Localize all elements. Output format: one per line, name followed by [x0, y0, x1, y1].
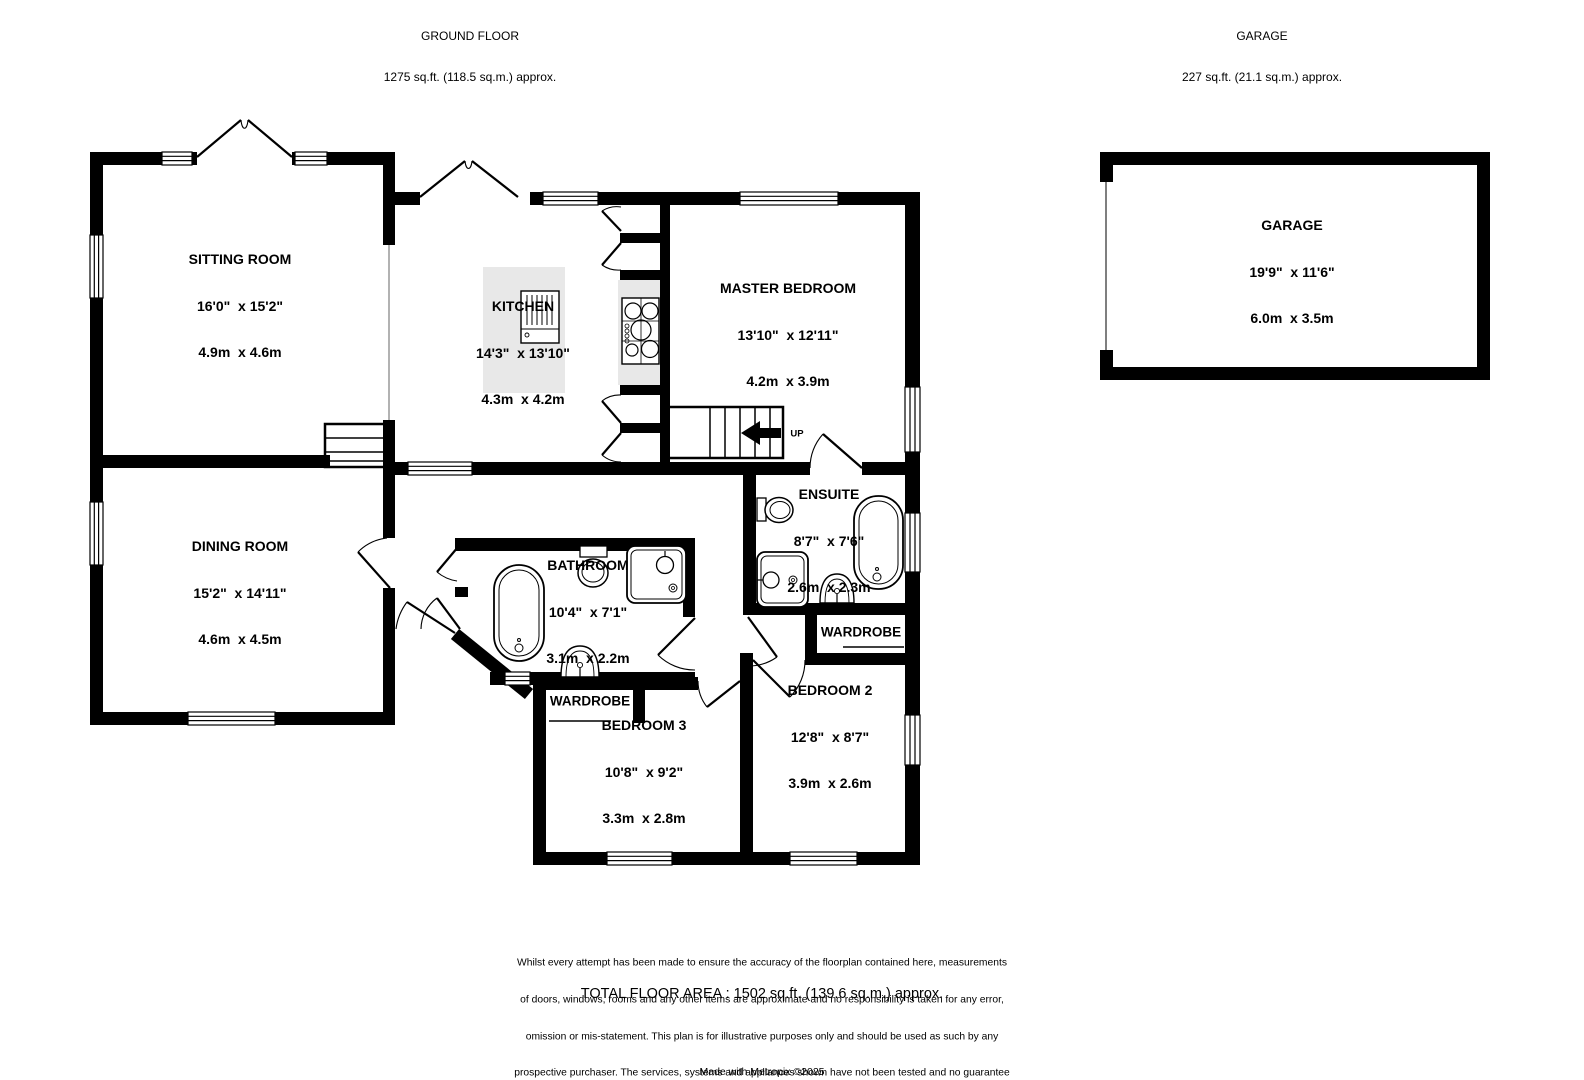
door-icon: [358, 538, 390, 588]
room-name: ENSUITE: [787, 487, 870, 503]
door-icon: [396, 602, 455, 633]
window: [543, 192, 598, 205]
room-name: KITCHEN: [476, 299, 570, 315]
room-dims-metric: 6.0m x 3.5m: [1249, 311, 1334, 327]
up-label: UP: [790, 429, 803, 440]
room-dims-imperial: 8'7" x 7'6": [787, 533, 870, 549]
bathtub-icon: [494, 565, 544, 661]
disclaimer-line: Whilst every attempt has been made to en…: [514, 958, 1010, 970]
room-name: SITTING ROOM: [189, 252, 292, 268]
window: [905, 513, 920, 572]
room-label-ensuite: ENSUITE 8'7" x 7'6" 2.6m x 2.3m: [787, 456, 870, 627]
window: [408, 462, 472, 475]
room-dims-metric: 4.2m x 3.9m: [720, 374, 856, 390]
credit: Made with Metropix ©2025: [699, 1066, 824, 1078]
window: [740, 192, 838, 205]
room-label-bedroom-2: BEDROOM 2 12'8" x 8'7" 3.9m x 2.6m: [788, 652, 873, 823]
window: [90, 502, 103, 565]
room-dims-imperial: 19'9" x 11'6": [1249, 264, 1334, 280]
floorplan-page: GROUND FLOOR 1275 sq.ft. (118.5 sq.m.) a…: [0, 0, 1584, 1080]
hob-icon: [622, 298, 659, 364]
window: [162, 152, 192, 165]
shower-icon: [627, 546, 686, 603]
room-dims-imperial: 12'8" x 8'7": [788, 729, 873, 745]
door-icon: [698, 681, 740, 707]
room-dims-metric: 3.3m x 2.8m: [602, 811, 687, 827]
garage-header: GARAGE 227 sq.ft. (21.1 sq.m.) approx.: [1182, 3, 1342, 111]
room-label-bedroom-3: BEDROOM 3 10'8" x 9'2" 3.3m x 2.8m: [602, 687, 687, 858]
room-label-garage: GARAGE 19'9" x 11'6" 6.0m x 3.5m: [1249, 187, 1334, 358]
room-name: BEDROOM 3: [602, 718, 687, 734]
wardrobe-label-left: WARDROBE: [550, 694, 630, 709]
room-dims-metric: 3.9m x 2.6m: [788, 776, 873, 792]
room-dims-imperial: 14'3" x 13'10": [476, 345, 570, 361]
ground-floor-header: GROUND FLOOR 1275 sq.ft. (118.5 sq.m.) a…: [384, 3, 557, 111]
window: [295, 152, 327, 165]
room-dims-imperial: 15'2" x 14'11": [192, 585, 288, 601]
room-dims-imperial: 16'0" x 15'2": [189, 298, 292, 314]
disclaimer-line: omission or mis-statement. This plan is …: [514, 1031, 1010, 1043]
room-label-kitchen: KITCHEN 14'3" x 13'10" 4.3m x 4.2m: [476, 268, 570, 439]
room-dims-metric: 4.3m x 4.2m: [476, 392, 570, 408]
ground-floor-subtitle: 1275 sq.ft. (118.5 sq.m.) approx.: [384, 71, 557, 85]
room-name: MASTER BEDROOM: [720, 281, 856, 297]
window: [188, 712, 275, 725]
room-label-dining-room: DINING ROOM 15'2" x 14'11" 4.6m x 4.5m: [192, 508, 288, 679]
ground-floor-title: GROUND FLOOR: [384, 30, 557, 44]
window: [505, 672, 530, 685]
garage-header-title: GARAGE: [1182, 30, 1342, 44]
disclaimer: Whilst every attempt has been made to en…: [514, 933, 1010, 1080]
room-label-sitting-room: SITTING ROOM 16'0" x 15'2" 4.9m x 4.6m: [189, 221, 292, 392]
room-label-master-bedroom: MASTER BEDROOM 13'10" x 12'11" 4.2m x 3.…: [720, 250, 856, 421]
room-dims-metric: 3.1m x 2.2m: [546, 651, 629, 667]
door-icon: [658, 618, 695, 670]
room-label-bathroom: BATHROOM 10'4" x 7'1" 3.1m x 2.2m: [546, 527, 629, 698]
window: [905, 715, 920, 765]
wardrobe-label-right: WARDROBE: [821, 625, 901, 640]
window: [905, 387, 920, 452]
room-name: BEDROOM 2: [788, 683, 873, 699]
french-door-icon: [420, 161, 518, 197]
disclaimer-line: of doors, windows, rooms and any other i…: [514, 994, 1010, 1006]
door-icon: [437, 541, 463, 581]
room-name: GARAGE: [1249, 218, 1334, 234]
french-door-icon: [197, 120, 292, 157]
garage-header-subtitle: 227 sq.ft. (21.1 sq.m.) approx.: [1182, 71, 1342, 85]
room-dims-imperial: 10'8" x 9'2": [602, 764, 687, 780]
room-name: BATHROOM: [546, 558, 629, 574]
up-arrow-icon: [741, 421, 781, 445]
room-name: DINING ROOM: [192, 539, 288, 555]
room-dims-metric: 2.6m x 2.3m: [787, 580, 870, 596]
room-dims-metric: 4.6m x 4.5m: [192, 632, 288, 648]
stairs-lower-icon: [325, 424, 391, 467]
window: [90, 235, 103, 298]
room-dims-imperial: 13'10" x 12'11": [720, 327, 856, 343]
room-dims-metric: 4.9m x 4.6m: [189, 345, 292, 361]
window: [790, 852, 857, 865]
room-dims-imperial: 10'4" x 7'1": [546, 604, 629, 620]
